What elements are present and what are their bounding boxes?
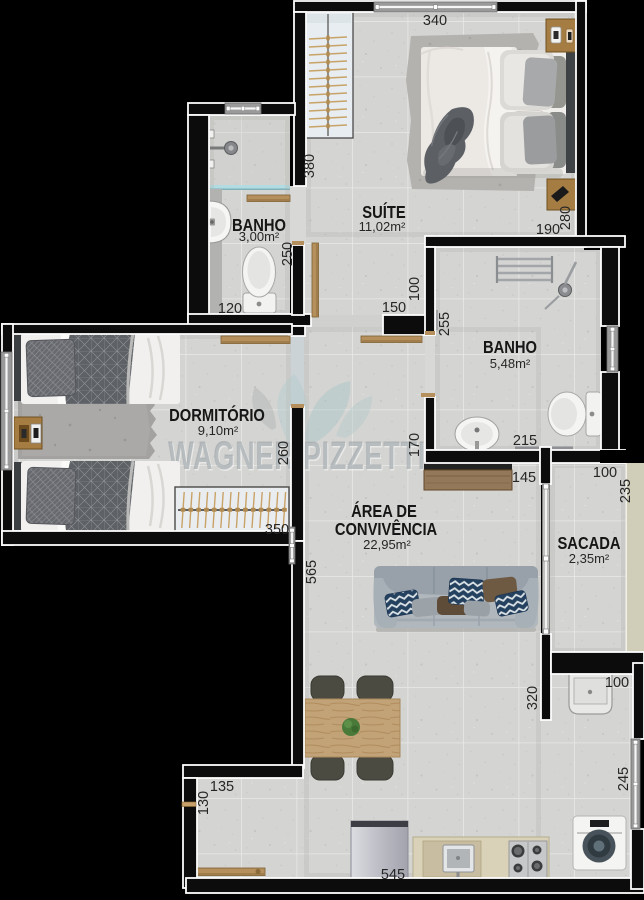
svg-text:ÁREA DE: ÁREA DE bbox=[351, 501, 417, 522]
svg-text:145: 145 bbox=[512, 470, 536, 486]
svg-text:3,00m²: 3,00m² bbox=[239, 229, 280, 244]
svg-text:260: 260 bbox=[276, 441, 292, 465]
svg-text:100: 100 bbox=[407, 277, 423, 301]
svg-text:120: 120 bbox=[218, 301, 242, 317]
svg-text:190: 190 bbox=[536, 222, 560, 238]
svg-text:245: 245 bbox=[616, 767, 632, 791]
svg-text:235: 235 bbox=[618, 479, 634, 503]
svg-text:215: 215 bbox=[513, 433, 537, 449]
svg-text:380: 380 bbox=[302, 154, 318, 178]
svg-text:22,95m²: 22,95m² bbox=[363, 537, 411, 552]
svg-text:340: 340 bbox=[423, 13, 447, 29]
svg-text:150: 150 bbox=[382, 300, 406, 316]
svg-text:11,02m²: 11,02m² bbox=[359, 219, 406, 234]
svg-text:5,48m²: 5,48m² bbox=[490, 356, 531, 371]
svg-text:9,10m²: 9,10m² bbox=[198, 423, 239, 438]
svg-text:350: 350 bbox=[265, 522, 289, 538]
svg-text:100: 100 bbox=[593, 465, 617, 481]
svg-text:255: 255 bbox=[437, 312, 453, 336]
svg-text:280: 280 bbox=[558, 206, 574, 230]
svg-text:320: 320 bbox=[525, 686, 541, 710]
svg-text:BANHO: BANHO bbox=[483, 338, 537, 358]
svg-text:2,35m²: 2,35m² bbox=[569, 551, 610, 566]
svg-text:130: 130 bbox=[196, 791, 212, 815]
svg-text:135: 135 bbox=[210, 779, 234, 795]
svg-text:565: 565 bbox=[304, 560, 320, 584]
svg-text:100: 100 bbox=[605, 675, 629, 691]
svg-text:250: 250 bbox=[280, 242, 296, 266]
svg-text:545: 545 bbox=[381, 867, 405, 883]
svg-text:170: 170 bbox=[407, 433, 423, 457]
